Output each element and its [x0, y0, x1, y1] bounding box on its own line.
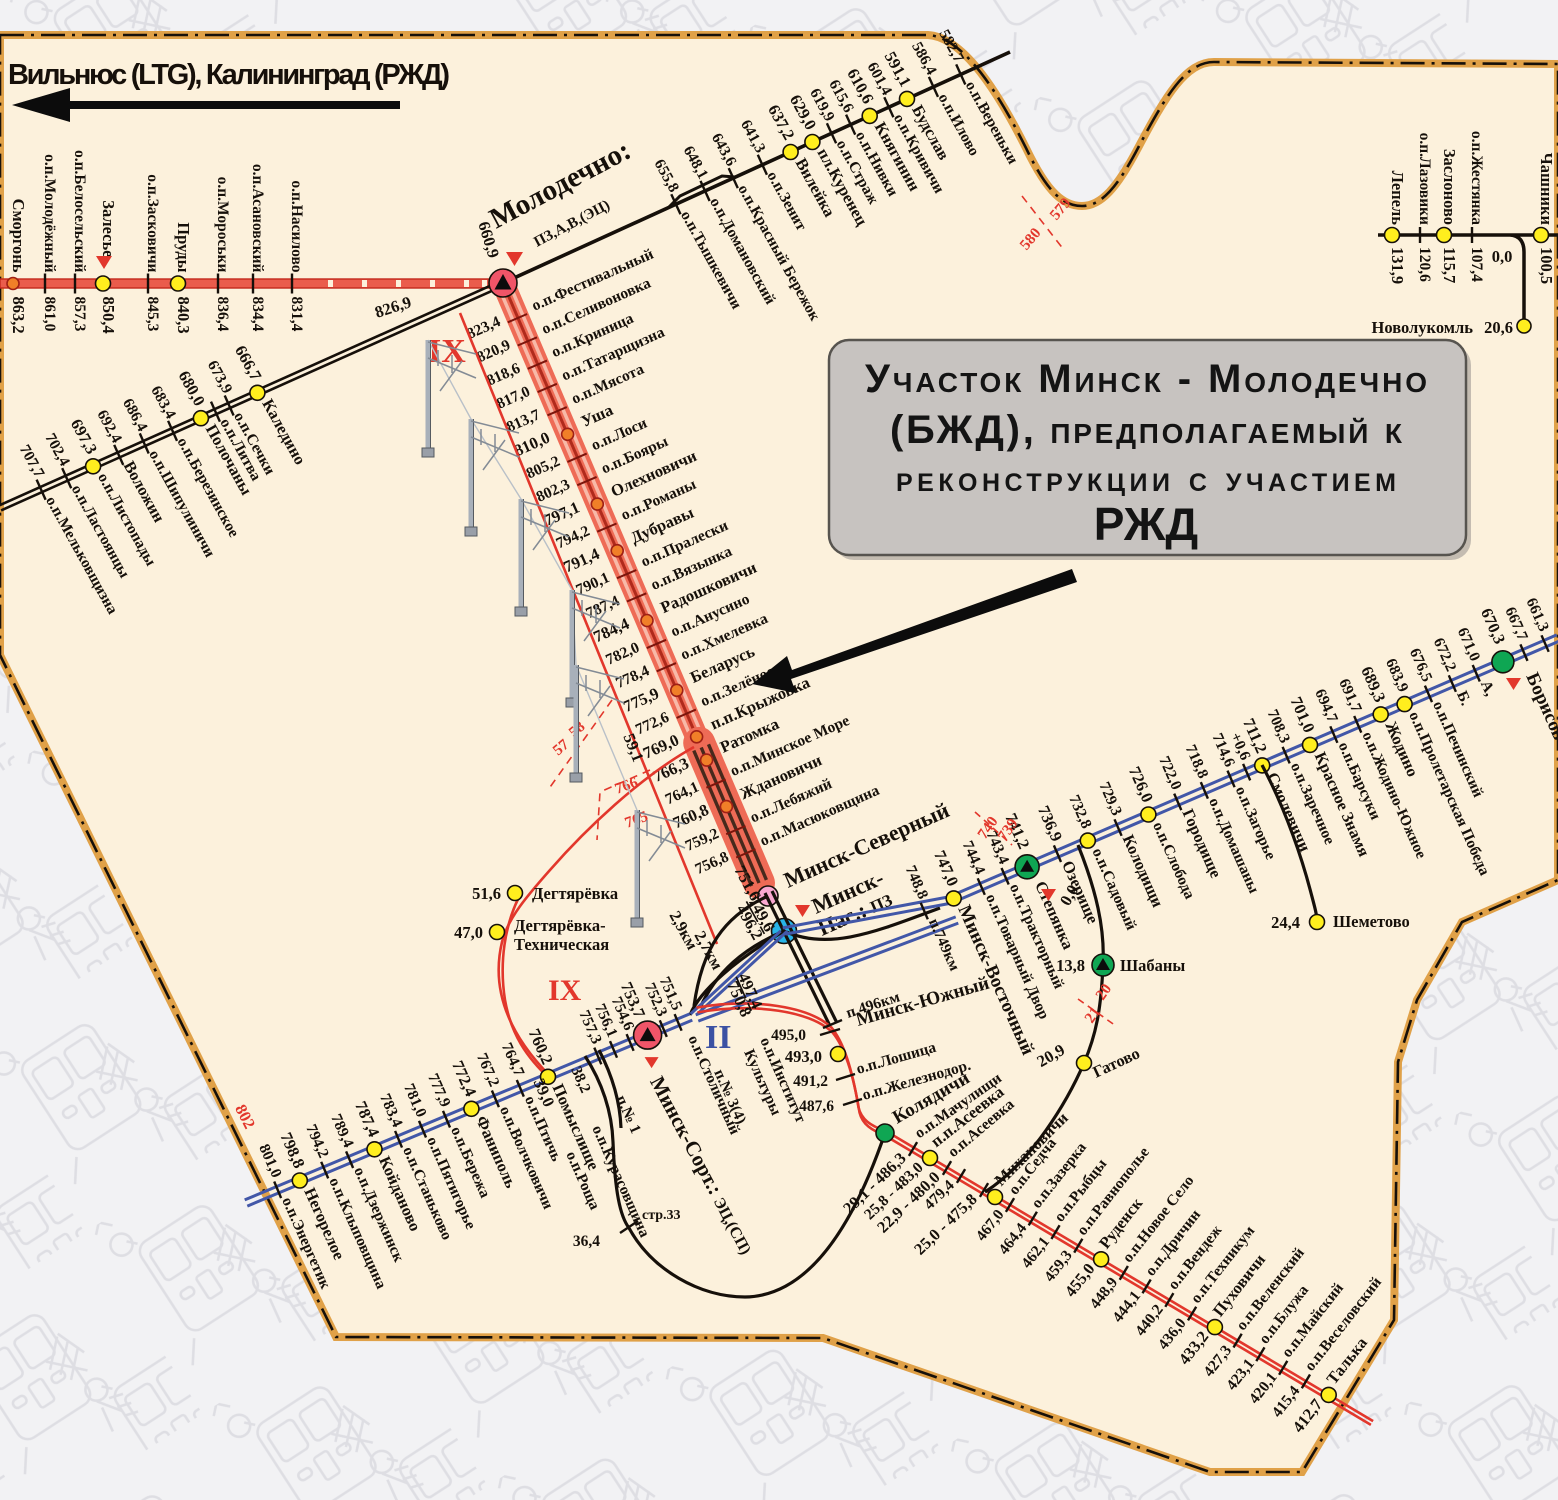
- svg-text:Участок Минск - Молодечно: Участок Минск - Молодечно: [865, 357, 1427, 401]
- svg-text:о.п.Белосельский: о.п.Белосельский: [71, 150, 88, 273]
- svg-text:13,8: 13,8: [1056, 956, 1085, 975]
- svg-text:47,0: 47,0: [454, 923, 483, 942]
- svg-text:115,7: 115,7: [1440, 247, 1459, 283]
- svg-text:Лепель: Лепель: [1388, 171, 1407, 226]
- svg-text:Шеметово: Шеметово: [1333, 912, 1410, 931]
- svg-text:36,4: 36,4: [573, 1233, 600, 1250]
- svg-text:0,0: 0,0: [1492, 247, 1513, 266]
- svg-text:о.п.Жестянка: о.п.Жестянка: [1468, 131, 1485, 225]
- svg-text:845,3: 845,3: [144, 297, 161, 332]
- svg-text:Залесье: Залесье: [99, 200, 118, 257]
- svg-text:861,0: 861,0: [41, 297, 58, 332]
- svg-text:Шабаны: Шабаны: [1120, 956, 1185, 975]
- svg-text:Сморгонь: Сморгонь: [9, 199, 28, 273]
- svg-text:Новолукомль: Новолукомль: [1372, 318, 1474, 337]
- svg-text:II: II: [705, 1019, 731, 1056]
- svg-text:24,4: 24,4: [1271, 913, 1300, 932]
- svg-text:491,2: 491,2: [793, 1073, 828, 1090]
- svg-text:850,4: 850,4: [99, 297, 118, 334]
- svg-text:840,3: 840,3: [174, 297, 193, 334]
- svg-text:Дегтярёвка-: Дегтярёвка-: [514, 916, 606, 935]
- svg-text:863,2: 863,2: [9, 297, 28, 334]
- svg-text:834,4: 834,4: [249, 297, 266, 332]
- svg-text:495,0: 495,0: [771, 1027, 806, 1044]
- svg-text:120,6: 120,6: [1416, 247, 1433, 282]
- svg-text:о.п.Лазовики: о.п.Лазовики: [1416, 133, 1433, 225]
- svg-text:107,4: 107,4: [1468, 247, 1485, 282]
- svg-text:20,6: 20,6: [1484, 318, 1513, 337]
- svg-text:487,6: 487,6: [799, 1098, 834, 1115]
- svg-text:Вильнюс (LTG), Калининград (РЖ: Вильнюс (LTG), Калининград (РЖД): [8, 59, 450, 91]
- svg-text:Пруды: Пруды: [174, 222, 193, 272]
- svg-text:(БЖД), предполагаемый к: (БЖД), предполагаемый к: [890, 408, 1403, 452]
- svg-text:о.п.Молодёжный: о.п.Молодёжный: [41, 154, 58, 272]
- svg-text:100,5: 100,5: [1537, 247, 1556, 284]
- svg-text:836,4: 836,4: [214, 297, 231, 332]
- svg-text:493,0: 493,0: [785, 1047, 822, 1066]
- svg-text:51,6: 51,6: [472, 884, 501, 903]
- svg-text:Техническая: Техническая: [514, 935, 609, 954]
- svg-text:о.п.Асановский: о.п.Асановский: [249, 164, 266, 273]
- svg-text:РЖД: РЖД: [1094, 498, 1198, 550]
- svg-text:реконструкции с участием: реконструкции с участием: [896, 458, 1396, 499]
- svg-text:Чашники: Чашники: [1537, 153, 1556, 226]
- svg-text:857,3: 857,3: [71, 297, 88, 332]
- svg-text:о.п.Мороськи: о.п.Мороськи: [214, 177, 231, 273]
- svg-text:831,4: 831,4: [288, 297, 305, 332]
- svg-text:131,9: 131,9: [1388, 247, 1407, 284]
- svg-text:о.п.Засковичи: о.п.Засковичи: [144, 174, 161, 272]
- svg-text:о.п.Насилово: о.п.Насилово: [288, 180, 305, 272]
- svg-text:Дегтярёвка: Дегтярёвка: [532, 884, 618, 903]
- svg-text:Заслоново: Заслоново: [1440, 149, 1459, 225]
- svg-text:IX: IX: [548, 974, 582, 1007]
